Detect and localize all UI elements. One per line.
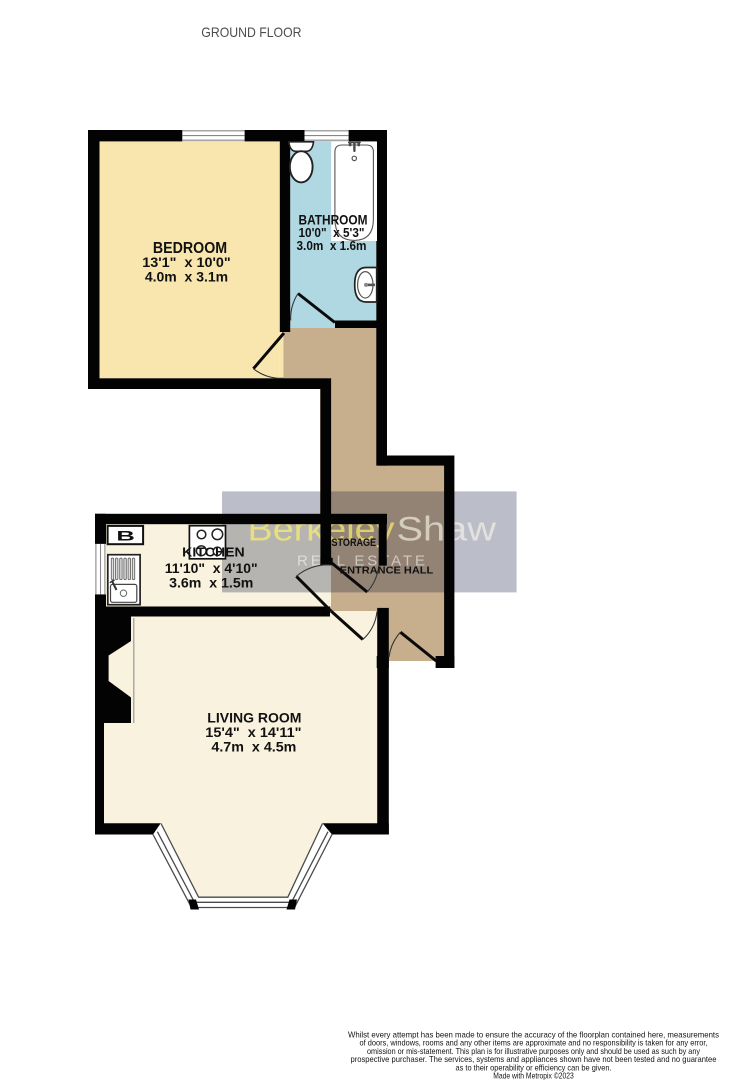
svg-text:ENTRANCE HALL: ENTRANCE HALL [340,564,434,576]
svg-text:B: B [116,527,135,543]
svg-text:GROUND FLOOR: GROUND FLOOR [201,24,301,40]
svg-text:Made with Metropix ©2023: Made with Metropix ©2023 [493,1071,574,1080]
svg-text:3.6m x 1.5m: 3.6m x 1.5m [169,575,253,591]
svg-text:4.7m x 4.5m: 4.7m x 4.5m [211,738,296,754]
svg-text:3.0m x 1.6m: 3.0m x 1.6m [297,238,367,253]
svg-text:KITCHEN: KITCHEN [182,544,244,559]
svg-text:LIVING ROOM: LIVING ROOM [207,709,301,725]
svg-text:STORAGE: STORAGE [332,537,377,549]
svg-text:4.0m x 3.1m: 4.0m x 3.1m [145,268,228,284]
